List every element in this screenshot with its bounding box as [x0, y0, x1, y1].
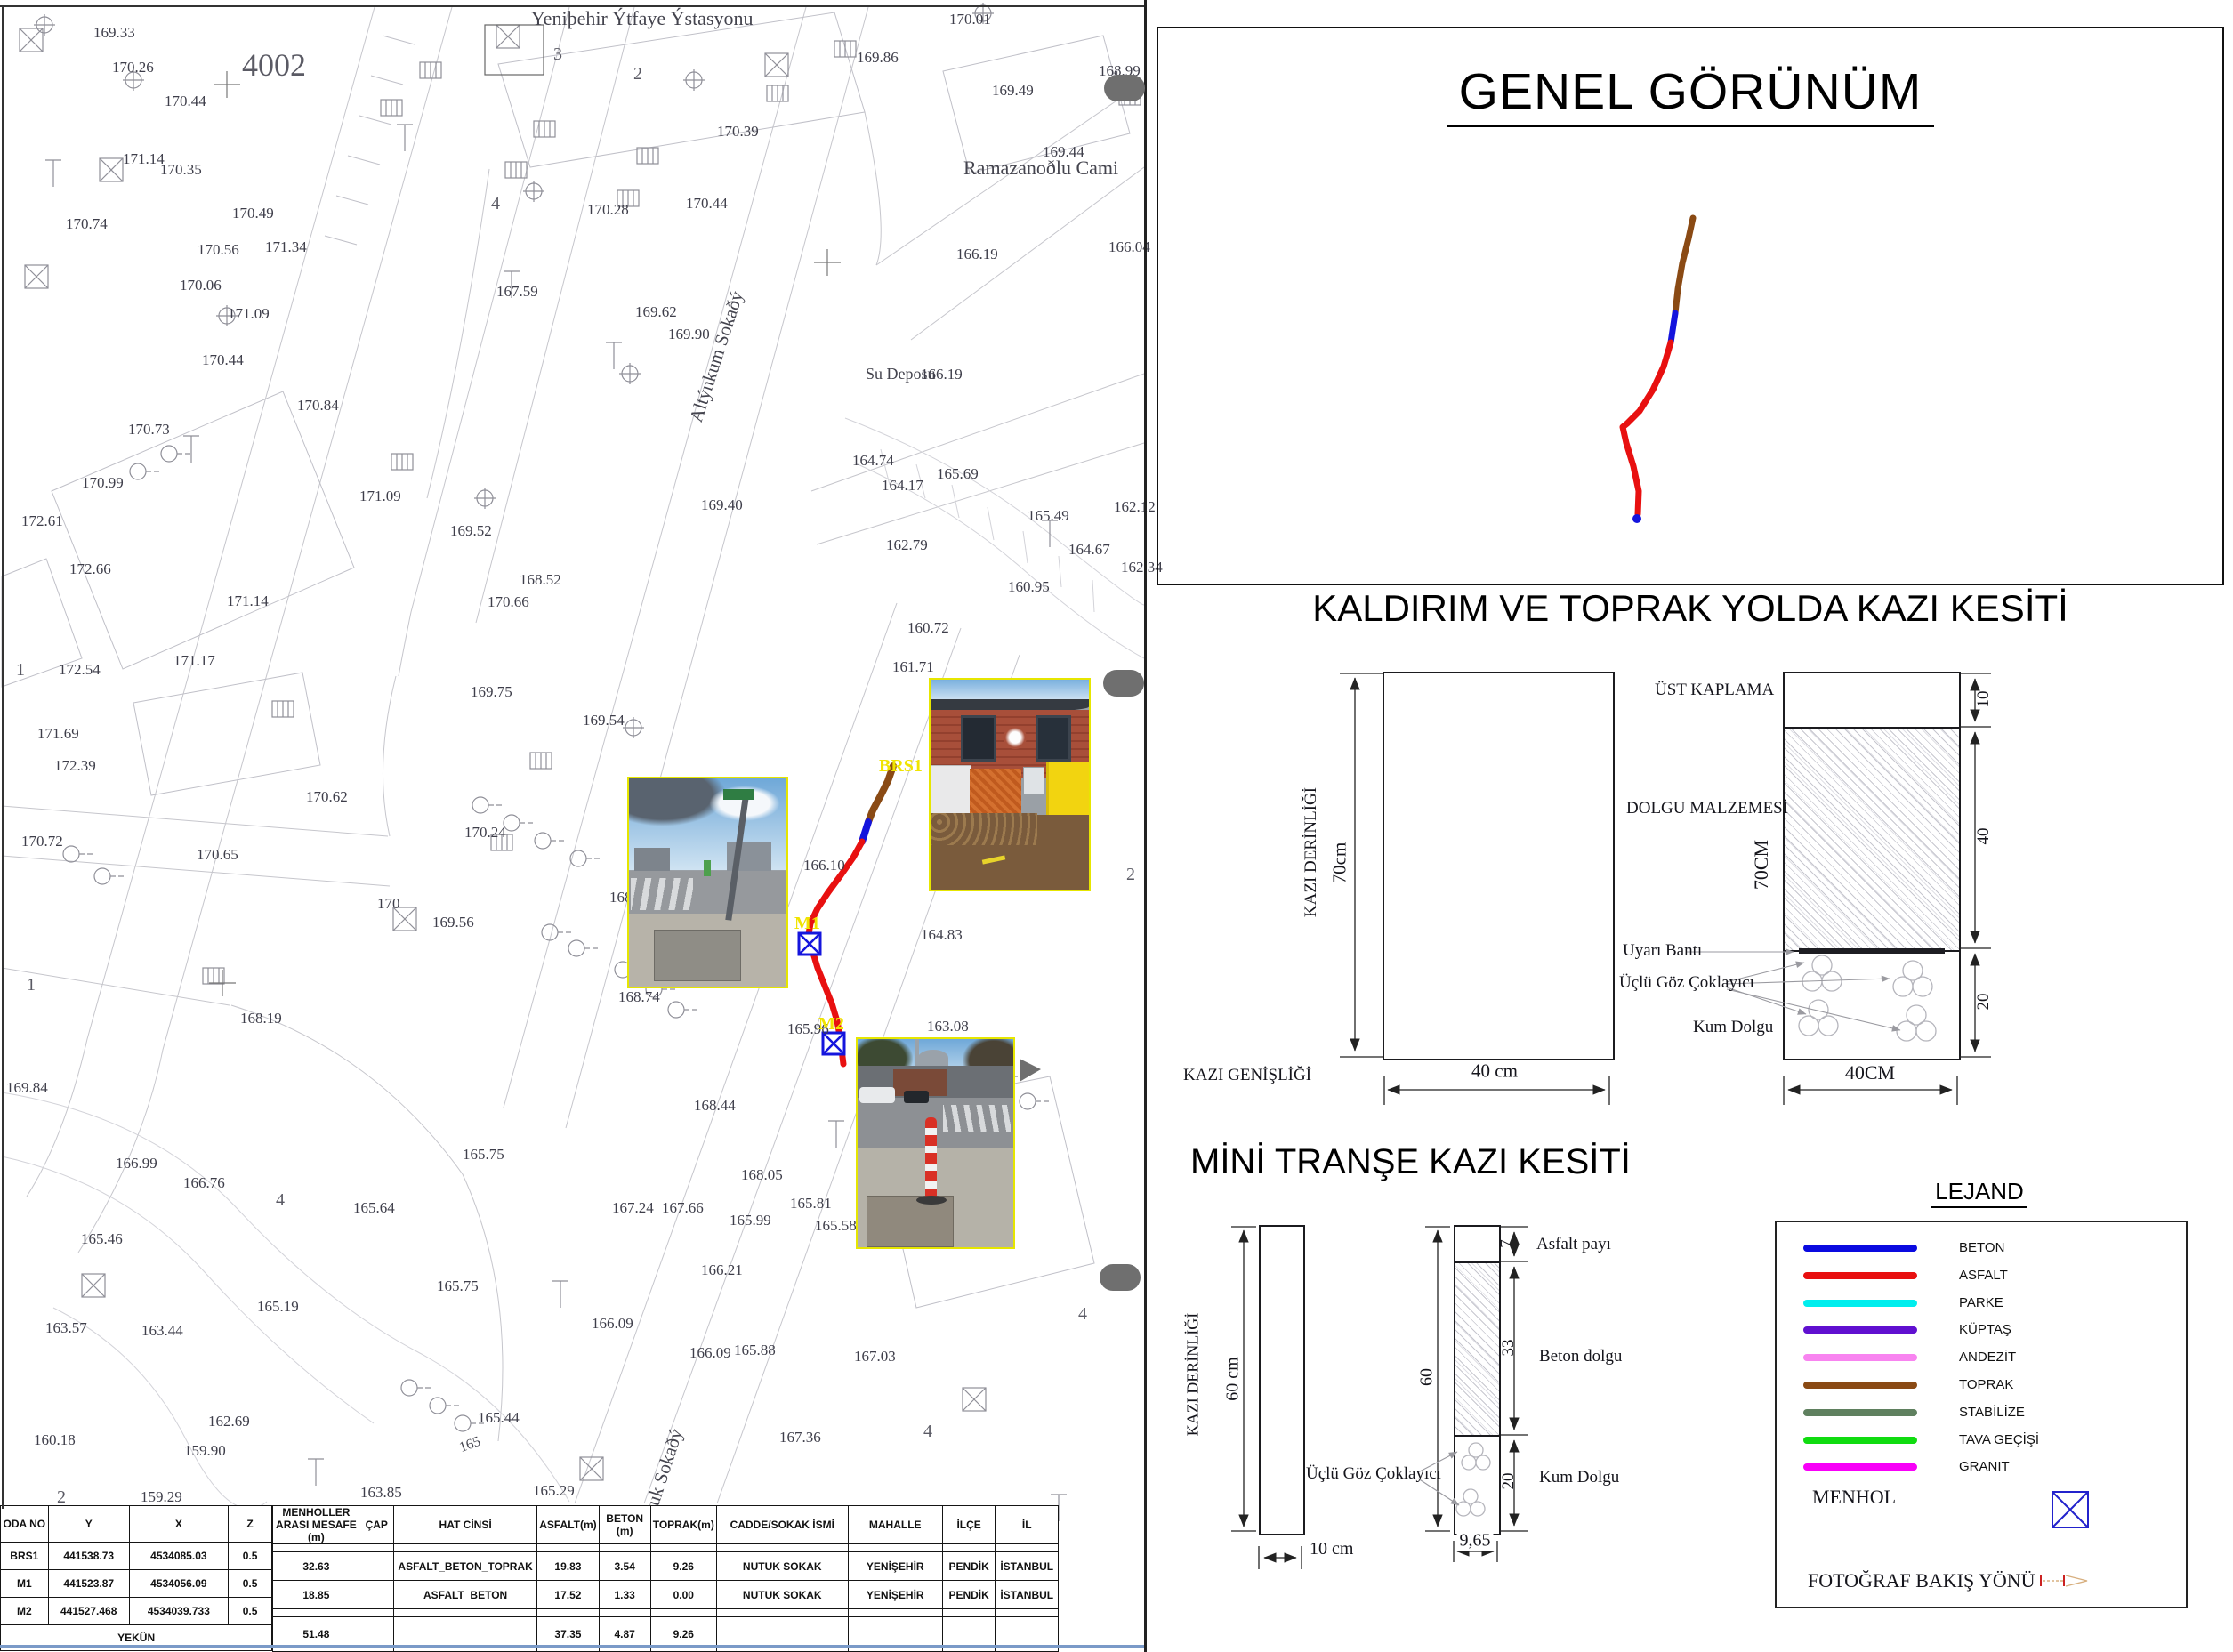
elevation-label: 161.71	[892, 658, 934, 676]
kaldirim-depth-label: KAZI DERİNLİĞİ	[1302, 787, 1321, 917]
table-cell: ASFALT_BETON	[394, 1581, 537, 1609]
legend-color-bar	[1803, 1437, 1917, 1444]
pole-icon	[308, 1459, 324, 1486]
elevation-label: 165.75	[437, 1277, 479, 1295]
map-bottom-rule	[0, 1645, 1146, 1648]
table-cell	[359, 1581, 394, 1609]
table-cell	[599, 1609, 650, 1617]
elevation-label: 169.84	[6, 1079, 48, 1097]
elevation-label: 165.19	[257, 1298, 299, 1316]
table-cell: 3.54	[599, 1552, 650, 1581]
table-cell	[996, 1544, 1059, 1552]
legend-item: ANDEZİT	[1803, 1350, 2159, 1369]
parcel-label: 1	[16, 660, 25, 681]
crossed-square-icon	[82, 1274, 105, 1297]
table-cell: BRS1	[1, 1543, 49, 1570]
culvert-icon	[203, 968, 224, 984]
elevation-label: 170.35	[160, 161, 202, 179]
dim-40-label: 40	[1974, 828, 1994, 845]
photo-sidewalk-crosswalk	[627, 777, 788, 988]
legend-color-bar	[1803, 1354, 1917, 1361]
pole-icon	[183, 436, 199, 463]
table-cell: YENİŞEHİR	[848, 1552, 942, 1581]
photo-street-mosque	[856, 1037, 1015, 1249]
elevation-label: 162.69	[208, 1413, 250, 1430]
survey-point-icon	[523, 181, 544, 202]
elevation-label: 165.64	[353, 1199, 395, 1217]
kaldirim-40cm-label: 40 cm	[1471, 1060, 1518, 1083]
photo-brick-building	[929, 678, 1091, 891]
table-header-cell: MENHOLLER ARASI MESAFE (m)	[273, 1506, 359, 1544]
table-cell: 9.26	[650, 1552, 716, 1581]
dolgu-malzemesi-label: DOLGU MALZEMESİ	[1626, 799, 1788, 818]
table-cell: 19.83	[537, 1552, 599, 1581]
table-cell	[537, 1544, 599, 1552]
photo-direction-label: FOTOĞRAF BAKIŞ YÖNÜ	[1808, 1569, 2035, 1592]
table-cell: NUTUK SOKAK	[716, 1552, 848, 1581]
elevation-label: 171.34	[265, 238, 307, 256]
elevation-label: 166.76	[183, 1174, 225, 1192]
legend-item-label: TOPRAK	[1959, 1377, 2013, 1392]
survey-point-icon	[619, 363, 641, 384]
parcel-label: 3	[553, 44, 562, 65]
photo-window	[1036, 715, 1071, 762]
elevation-label: 165.75	[463, 1146, 504, 1164]
survey-table: ODA NOYXZBRS1441538.734534085.030.5M1441…	[0, 1505, 1059, 1648]
route-point-label: M2	[818, 1014, 844, 1035]
pole-icon	[606, 342, 622, 369]
elevation-label: 170.06	[180, 277, 222, 294]
survey-table-right: MENHOLLER ARASI MESAFE (m)ÇAPHAT CİNSİAS…	[272, 1505, 1059, 1652]
culvert-icon	[420, 62, 441, 78]
elevation-label: 166.19	[956, 246, 998, 263]
parcel-label: 1	[27, 975, 36, 995]
elevation-label: 163.57	[45, 1319, 87, 1337]
table-header-cell: İL	[996, 1506, 1059, 1544]
kaldirim-40CM-label: 40CM	[1845, 1061, 1895, 1084]
table-cell: 441523.87	[48, 1570, 129, 1598]
elevation-label: 165.49	[1028, 507, 1069, 525]
culvert-icon	[534, 121, 555, 137]
elevation-label: 170.56	[198, 241, 239, 259]
photo-sign	[723, 789, 754, 800]
photo-panel-orange	[970, 769, 1021, 815]
legend-item: GRANIT	[1803, 1459, 2159, 1479]
photo-leaves	[931, 813, 1037, 845]
table-cell	[942, 1609, 996, 1617]
legend-item-label: BETON	[1959, 1240, 2004, 1255]
route-point-label: BRS1	[879, 756, 923, 777]
pole-icon	[552, 1281, 568, 1308]
elevation-label: 169.56	[432, 914, 474, 931]
elevation-label: 165.81	[790, 1195, 832, 1213]
table-cell	[359, 1609, 394, 1617]
table-cell	[716, 1544, 848, 1552]
uyari-banti-label: Uyarı Bantı	[1623, 941, 1702, 961]
parcel-label: 4	[1078, 1304, 1087, 1325]
kum-dolgu-label: Kum Dolgu	[1693, 1018, 1773, 1037]
legend-color-bar	[1803, 1409, 1917, 1416]
kaldirim-70cm-label: 70cm	[1329, 842, 1351, 884]
elevation-label: 164.83	[921, 926, 963, 944]
elevation-label: 166.99	[116, 1155, 157, 1173]
elevation-label: 171.09	[228, 305, 270, 323]
elevation-label: 168.19	[240, 1010, 282, 1027]
warning-tape-bar	[1799, 948, 1945, 954]
table-cell: PENDİK	[942, 1552, 996, 1581]
table-header-cell: ASFALT(m)	[537, 1506, 599, 1544]
elevation-label: 171.14	[123, 150, 165, 168]
tree-icon	[94, 868, 125, 884]
table-cell: ASFALT_BETON_TOPRAK	[394, 1552, 537, 1581]
table-cell: 4534056.09	[129, 1570, 228, 1598]
elevation-label: 166.21	[701, 1261, 743, 1279]
mini-20-label: 20	[1499, 1473, 1519, 1490]
elevation-label: 170.65	[197, 846, 238, 864]
elevation-label: 171.14	[227, 592, 269, 610]
photo-manhole-cover	[654, 930, 741, 981]
tree-icon	[401, 1380, 432, 1396]
tree-icon	[542, 924, 573, 940]
pole-icon	[45, 160, 61, 187]
mini-depth-label: KAZI DERİNLİĞİ	[1184, 1313, 1203, 1436]
table-cell	[848, 1544, 942, 1552]
elevation-label: 169.62	[635, 303, 677, 321]
tree-icon	[1020, 1093, 1051, 1109]
elevation-label: 170.66	[488, 593, 529, 611]
elevation-label: 168.44	[694, 1097, 736, 1115]
crossed-square-icon	[765, 53, 788, 77]
photo-panel-white	[931, 765, 971, 817]
photo-window	[961, 715, 996, 762]
culvert-icon	[637, 148, 658, 164]
table-cell	[394, 1544, 537, 1552]
route-overview	[1623, 218, 1693, 523]
uclu-goz-label: Üçlü Göz Çoklayıcı	[1619, 973, 1754, 993]
mini-965-label: 9,65	[1457, 1531, 1494, 1551]
elevation-label: 170	[377, 895, 400, 913]
street-label: Yeniþehir Ýtfaye Ýstasyonu	[531, 7, 754, 30]
culvert-icon	[530, 753, 552, 769]
table-cell: 1.33	[599, 1581, 650, 1609]
survey-point-icon	[623, 717, 644, 738]
crossed-square-icon	[20, 28, 43, 52]
manhole-icon	[799, 933, 820, 955]
elevation-label: 163.85	[360, 1484, 402, 1502]
pole-icon	[828, 1121, 844, 1148]
photo-bollard	[925, 1117, 937, 1199]
elevation-label: 170.39	[717, 123, 759, 141]
elevation-label: 170.62	[306, 788, 348, 806]
table-header-cell: HAT CİNSİ	[394, 1506, 537, 1544]
table-cell: İSTANBUL	[996, 1552, 1059, 1581]
crossed-square-icon	[100, 158, 123, 181]
elevation-label: 170.73	[128, 421, 170, 439]
elevation-label: 170.72	[21, 833, 63, 850]
culvert-icon	[505, 162, 527, 178]
parcel-label: 4002	[242, 46, 306, 84]
elevation-label: 170.84	[297, 397, 339, 415]
legend-item: TAVA GEÇİŞİ	[1803, 1432, 2159, 1452]
elevation-label: 172.54	[59, 661, 101, 679]
legend-color-bar	[1803, 1245, 1917, 1252]
legend-item: ASFALT	[1803, 1268, 2159, 1287]
photo-building	[634, 848, 670, 873]
legend-item-label: GRANIT	[1959, 1459, 2010, 1474]
photo-crosswalk	[943, 1105, 1011, 1132]
photo-crosswalk	[631, 878, 693, 910]
table-cell: 0.5	[228, 1543, 271, 1570]
mini-kum-dolgu-label: Kum Dolgu	[1539, 1468, 1619, 1487]
elevation-label: 169.75	[471, 683, 512, 701]
elevation-label: 159.90	[184, 1442, 226, 1460]
dim-20-label: 20	[1974, 994, 1994, 1011]
elevation-label: 171.17	[173, 652, 215, 670]
overview-line-toprak	[1675, 218, 1693, 313]
menhol-label: MENHOL	[1812, 1486, 1896, 1509]
binder-hole	[1103, 670, 1144, 697]
table-cell: 4534085.03	[129, 1543, 228, 1570]
culvert-icon	[834, 41, 856, 57]
elevation-label: 169.52	[450, 522, 492, 540]
overview-line-asfalt	[1623, 342, 1671, 514]
elevation-label: 167.66	[662, 1199, 704, 1217]
table-cell: 0.00	[650, 1581, 716, 1609]
elevation-label: 165.44	[478, 1409, 520, 1427]
map-top-border	[0, 5, 1146, 7]
table-cell	[359, 1552, 394, 1581]
legend-item-label: PARKE	[1959, 1295, 2003, 1310]
elevation-label: 159.29	[141, 1488, 182, 1506]
street-label: Ramazanoðlu Cami	[963, 157, 1118, 180]
elevation-label: 167.36	[779, 1429, 821, 1447]
photo-flower-decal	[1004, 726, 1027, 749]
table-cell: 441527.468	[48, 1598, 129, 1625]
table-header-cell: İLÇE	[942, 1506, 996, 1544]
binder-hole	[1104, 75, 1145, 101]
tree-icon	[570, 850, 601, 866]
culvert-icon	[767, 85, 788, 101]
dim-10-label: 10	[1974, 691, 1994, 708]
photo-meter-box	[1023, 767, 1044, 795]
legend-color-bar	[1803, 1326, 1917, 1334]
legend-color-bar	[1803, 1272, 1917, 1279]
photo-car-dark	[904, 1091, 929, 1103]
legend-item-label: TAVA GEÇİŞİ	[1959, 1432, 2039, 1447]
table-cell	[599, 1544, 650, 1552]
table-cell: 0.5	[228, 1598, 271, 1625]
legend-item-label: ASFALT	[1959, 1268, 2008, 1283]
elevation-label: 164.17	[882, 477, 923, 495]
elevation-label: 169.86	[857, 49, 899, 67]
ust-kaplama-label: ÜST KAPLAMA	[1655, 681, 1774, 700]
table-cell	[716, 1609, 848, 1617]
legend-item: PARKE	[1803, 1295, 2159, 1315]
tree-icon	[668, 1002, 699, 1018]
crossed-square-icon	[580, 1457, 603, 1480]
table-cell: PENDİK	[942, 1581, 996, 1609]
kaldirim-70CM-label: 70CM	[1750, 840, 1773, 890]
elevation-label: 168.52	[520, 571, 561, 589]
culvert-icon	[391, 454, 413, 470]
elevation-label: 170.99	[82, 474, 124, 492]
legend-item-label: STABİLİZE	[1959, 1405, 2025, 1420]
survey-table-left: ODA NOYXZBRS1441538.734534085.030.5M1441…	[0, 1505, 272, 1651]
table-cell	[394, 1609, 537, 1617]
legend-item: STABİLİZE	[1803, 1405, 2159, 1424]
legend-color-bar	[1803, 1463, 1917, 1471]
mini-uclu-goz-label: Üçlü Göz Çoklayıcı	[1306, 1464, 1441, 1484]
elevation-label: 169.54	[583, 712, 625, 729]
table-header-cell: MAHALLE	[848, 1506, 942, 1544]
elevation-label: 170.44	[686, 195, 728, 213]
elevation-label: 169.90	[668, 326, 710, 343]
elevation-label: 170.74	[66, 215, 108, 233]
elevation-label: 170.44	[165, 93, 206, 110]
elevation-label: 165.29	[533, 1482, 575, 1500]
elevation-label: 172.39	[54, 757, 96, 775]
table-cell	[650, 1609, 716, 1617]
tree-icon	[161, 446, 192, 462]
kaldirim-width-label: KAZI GENİŞLİĞİ	[1183, 1066, 1311, 1085]
elevation-label: 165.99	[730, 1212, 771, 1229]
table-header-cell: Y	[48, 1506, 129, 1543]
map-left-border	[2, 5, 4, 1509]
culvert-icon	[381, 100, 402, 116]
legend-item: KÜPTAŞ	[1803, 1322, 2159, 1342]
survey-point-icon	[683, 69, 705, 91]
table-cell	[359, 1544, 394, 1552]
tree-icon	[63, 846, 94, 862]
tree-icon	[568, 940, 600, 956]
street-label: Su Deposu	[866, 365, 936, 383]
elevation-label: 171.09	[359, 488, 401, 505]
survey-point-icon	[474, 488, 496, 509]
elevation-label: 172.66	[69, 560, 111, 578]
pole-icon	[397, 125, 413, 151]
table-header-cell: X	[129, 1506, 228, 1543]
table-cell: İSTANBUL	[996, 1581, 1059, 1609]
legend-item: TOPRAK	[1803, 1377, 2159, 1397]
table-cell	[650, 1544, 716, 1552]
elevation-label: 169.40	[701, 496, 743, 514]
elevation-label: 166.09	[689, 1344, 731, 1362]
table-cell	[848, 1609, 942, 1617]
asfalt-payi-label: Asfalt payı	[1536, 1235, 1611, 1254]
table-cell	[273, 1609, 359, 1617]
legend-color-bar	[1803, 1382, 1917, 1389]
elevation-label: 160.72	[907, 619, 949, 637]
table-header-cell: ODA NO	[1, 1506, 49, 1543]
table-cell: 17.52	[537, 1581, 599, 1609]
table-header-cell: BETON (m)	[599, 1506, 650, 1544]
photo-mosque-dome	[918, 1050, 948, 1066]
elevation-label: 165.58	[815, 1217, 857, 1235]
beton-dolgu-label: Beton dolgu	[1539, 1347, 1622, 1366]
crossed-square-icon	[496, 25, 520, 48]
elevation-label: 171.69	[37, 725, 79, 743]
table-cell: 441538.73	[48, 1543, 129, 1570]
mini-33-label: 33	[1499, 1340, 1519, 1357]
elevation-label: 168.05	[741, 1166, 783, 1184]
tree-icon	[504, 815, 535, 831]
elevation-label: 163.44	[141, 1322, 183, 1340]
table-cell	[537, 1609, 599, 1617]
parcel-label: 2	[1126, 865, 1135, 885]
table-header-cell: TOPRAK(m)	[650, 1506, 716, 1544]
mini-60cm-label: 60 cm	[1223, 1357, 1244, 1400]
table-cell: M2	[1, 1598, 49, 1625]
photo-minaret	[915, 1039, 919, 1066]
table-cell	[273, 1544, 359, 1552]
table-cell: M1	[1, 1570, 49, 1598]
elevation-label: 164.67	[1068, 541, 1110, 559]
legend-item: BETON	[1803, 1240, 2159, 1260]
binder-hole	[1100, 1264, 1141, 1291]
tree-icon	[472, 797, 504, 813]
panel-divider	[1144, 0, 1147, 1652]
elevation-label: 172.61	[21, 512, 63, 530]
table-cell: 32.63	[273, 1552, 359, 1581]
elevation-label: 170.01	[949, 11, 991, 28]
table-cell: 4534039.733	[129, 1598, 228, 1625]
photo-car	[859, 1087, 895, 1103]
legend-title: LEJAND	[1775, 1178, 2184, 1205]
parcel-label: 4	[491, 194, 500, 214]
elevation-label: 167.24	[612, 1199, 654, 1217]
elevation-label: 170.28	[587, 201, 629, 219]
parcel-label: 4	[276, 1190, 285, 1211]
photo-person	[704, 860, 711, 876]
table-header-cell: CADDE/SOKAK İSMİ	[716, 1506, 848, 1544]
elevation-label: 167.59	[496, 283, 538, 301]
elevation-label: 170.24	[464, 824, 506, 842]
table-cell: 0.5	[228, 1570, 271, 1598]
tree-icon	[430, 1398, 461, 1414]
elevation-label: 165.69	[937, 465, 979, 483]
mini-10cm-label: 10 cm	[1310, 1539, 1353, 1559]
elevation-label: 166.09	[592, 1315, 633, 1333]
crossed-square-icon	[25, 265, 48, 288]
elevation-label: 162.79	[886, 536, 928, 554]
elevation-label: 169.33	[93, 24, 135, 42]
legend-item-label: ANDEZİT	[1959, 1350, 2016, 1365]
table-cell	[996, 1609, 1059, 1617]
route-point-label: M1	[794, 914, 820, 934]
table-cell: NUTUK SOKAK	[716, 1581, 848, 1609]
elevation-label: 160.95	[1008, 578, 1050, 596]
elevation-label: 165.88	[734, 1342, 776, 1359]
drawing-sheet: 169.33170.26170.44171.14170.35170.74170.…	[0, 0, 2233, 1652]
mini-60-label: 60	[1417, 1368, 1438, 1386]
overview-end-point	[1632, 514, 1641, 523]
culvert-icon	[272, 701, 294, 717]
elevation-label: 168.74	[618, 988, 660, 1006]
table-header-cell: Z	[228, 1506, 271, 1543]
elevation-label: 167.03	[854, 1348, 896, 1366]
legend-item-label: KÜPTAŞ	[1959, 1322, 2011, 1337]
table-cell: YENİŞEHİR	[848, 1581, 942, 1609]
legend-color-bar	[1803, 1300, 1917, 1307]
parcel-label: 4	[923, 1422, 932, 1442]
tree-icon	[535, 833, 566, 849]
elevation-label: 169.49	[992, 82, 1034, 100]
crossed-square-icon	[963, 1388, 986, 1411]
table-cell: 18.85	[273, 1581, 359, 1609]
overview-line-beton	[1671, 313, 1675, 342]
table-cell	[942, 1544, 996, 1552]
elevation-label: 170.49	[232, 205, 274, 222]
